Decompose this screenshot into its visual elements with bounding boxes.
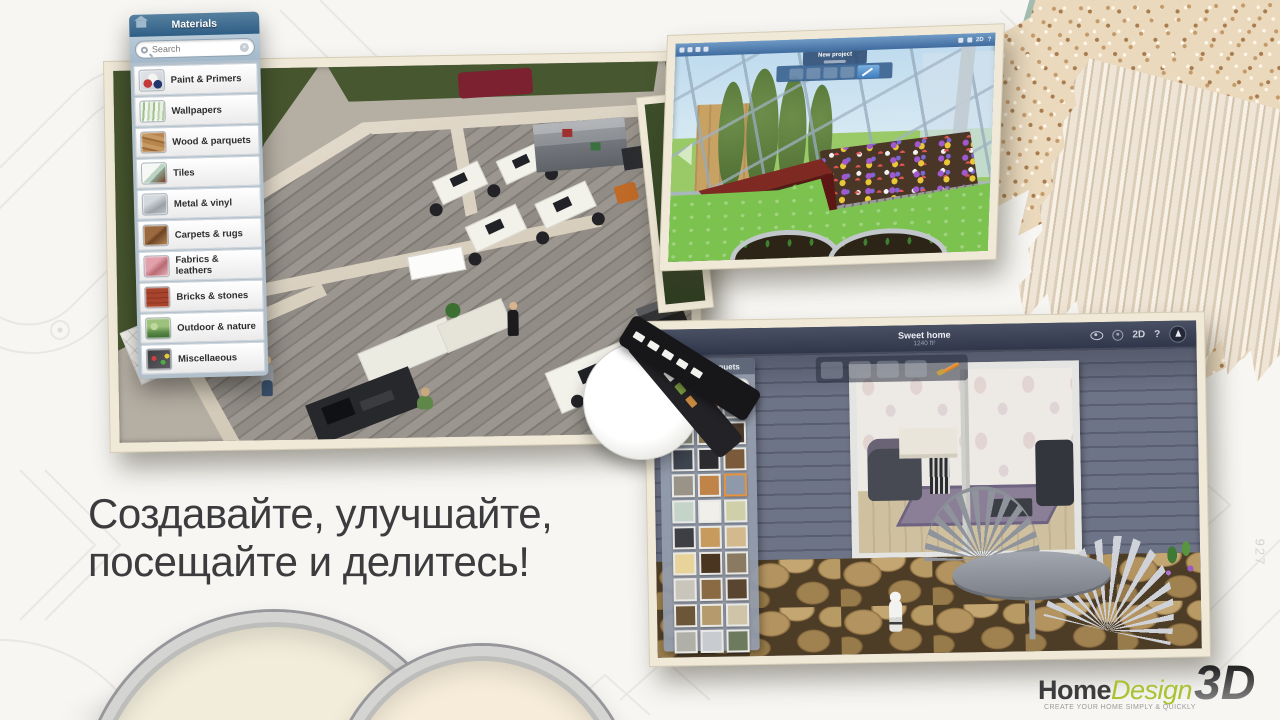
material-swatch[interactable] <box>672 526 695 549</box>
help-button[interactable]: ? <box>1154 328 1160 339</box>
misc-objects-icon <box>146 348 173 371</box>
home-title: Sweet home <box>898 329 951 340</box>
menu-icon[interactable] <box>679 47 684 52</box>
material-category-wallpapers[interactable]: Wallpapers <box>134 94 259 127</box>
headline-line-2: посещайте и делитесь! <box>88 538 552 586</box>
tool-slot[interactable] <box>905 360 927 377</box>
materials-panel: Materials × Paint & Primers Wallpapers W… <box>129 12 268 379</box>
materials-search-strip: × <box>130 34 261 63</box>
tool-slot[interactable] <box>840 66 854 78</box>
material-swatch[interactable] <box>673 552 696 575</box>
material-swatch[interactable] <box>699 552 722 575</box>
greenhouse-screenshot: 2D ? New project <box>660 24 1004 270</box>
previous-arrow-button[interactable] <box>677 143 692 166</box>
share-icon[interactable] <box>958 38 963 43</box>
material-category-paint-primers[interactable]: Paint & Primers <box>133 63 258 96</box>
material-swatch[interactable] <box>724 499 747 522</box>
material-swatch[interactable] <box>699 604 722 627</box>
material-category-miscellaeous[interactable]: Miscellaeous <box>141 342 266 375</box>
wood-planks-icon <box>140 131 167 154</box>
mode-2d-button[interactable]: 2D <box>976 36 984 42</box>
logo-design-text: Design <box>1111 675 1192 706</box>
home-area: 1240 ft² <box>898 339 951 347</box>
material-swatch[interactable] <box>698 526 721 549</box>
material-category-wood-parquets[interactable]: Wood & parquets <box>135 125 260 158</box>
brick-wall-icon <box>144 286 171 309</box>
office-shelf <box>533 117 629 173</box>
tiles-icon <box>141 162 168 185</box>
paint-tool-button[interactable] <box>857 64 879 78</box>
mode-2d-button[interactable]: 2D <box>1132 329 1145 340</box>
fabric-roll-icon <box>143 255 170 278</box>
paintbrush-tool-button[interactable] <box>933 358 963 377</box>
office-chair <box>468 252 481 265</box>
patio-plants <box>1160 534 1201 587</box>
materials-panel-header: Materials <box>129 12 260 37</box>
cat-figure <box>889 600 903 632</box>
material-swatch[interactable] <box>699 578 722 601</box>
material-swatch[interactable] <box>725 603 748 626</box>
tool-slot[interactable] <box>821 361 843 378</box>
tool-slot[interactable] <box>789 68 803 80</box>
compass-icon[interactable] <box>1169 325 1186 342</box>
help-button[interactable]: ? <box>988 36 992 42</box>
logo-home-text: Home <box>1038 675 1111 706</box>
greenhouse-scene: 2D ? New project <box>668 33 995 263</box>
plants-icon <box>145 317 172 340</box>
eye-icon[interactable] <box>1090 330 1103 339</box>
interior-side-chair <box>929 456 950 494</box>
material-category-tiles[interactable]: Tiles <box>136 156 261 189</box>
tool-slot[interactable] <box>877 360 899 377</box>
material-swatch[interactable] <box>725 577 748 600</box>
patio-tool-strip[interactable] <box>816 354 968 383</box>
material-category-carpets-rugs[interactable]: Carpets & rugs <box>137 218 262 251</box>
carpet-roll-icon <box>142 224 169 247</box>
marketing-headline: Создавайте, улучшайте, посещайте и делит… <box>88 490 552 587</box>
tool-slot[interactable] <box>849 361 871 378</box>
save-icon[interactable] <box>687 47 692 52</box>
trash-icon[interactable] <box>967 37 972 42</box>
material-swatch[interactable] <box>726 629 749 652</box>
undo-icon[interactable] <box>695 47 700 52</box>
material-swatch[interactable] <box>673 578 696 601</box>
blueprint-dimension-label: 927 <box>1252 539 1267 567</box>
material-swatch[interactable] <box>673 604 696 627</box>
home-title-block: Sweet home 1240 ft² <box>898 329 951 347</box>
interior-console-table <box>899 428 958 459</box>
materials-list: Paint & Primers Wallpapers Wood & parque… <box>130 60 268 375</box>
project-title: New project <box>803 51 867 60</box>
shelf-box <box>590 142 600 150</box>
clear-search-icon[interactable]: × <box>240 42 249 51</box>
home-icon[interactable] <box>136 21 146 28</box>
material-category-fabrics-leathers[interactable]: Fabrics & leathers <box>138 249 263 282</box>
material-category-bricks-stones[interactable]: Bricks & stones <box>139 280 264 313</box>
materials-search-field[interactable]: × <box>135 38 255 59</box>
tool-slot[interactable] <box>806 67 820 79</box>
logo-3d-text: 3D <box>1194 664 1255 704</box>
search-icon <box>141 46 148 53</box>
home-design-3d-logo: Home Design 3D CREATE YOUR HOME SIMPLY &… <box>1038 664 1255 711</box>
tool-slot[interactable] <box>823 67 837 79</box>
paint-buckets-icon <box>138 69 165 92</box>
material-swatch[interactable] <box>725 551 748 574</box>
search-input[interactable] <box>152 42 240 54</box>
redo-icon[interactable] <box>703 47 708 52</box>
material-swatch[interactable] <box>674 630 697 653</box>
interior-sofa <box>1035 440 1074 507</box>
material-swatch[interactable] <box>724 525 747 548</box>
shelf-box <box>562 129 572 137</box>
wallpaper-rolls-icon <box>139 100 166 123</box>
metal-sheet-icon <box>142 193 169 216</box>
camera-icon[interactable] <box>1112 329 1123 340</box>
office-sofa-red <box>458 68 534 99</box>
material-category-metal-vinyl[interactable]: Metal & vinyl <box>137 187 262 220</box>
material-category-outdoor-nature[interactable]: Outdoor & nature <box>140 311 265 344</box>
headline-line-1: Создавайте, улучшайте, <box>88 490 552 538</box>
material-swatch[interactable] <box>700 630 723 653</box>
materials-panel-title: Materials <box>171 18 217 31</box>
material-swatch[interactable] <box>672 500 695 523</box>
bistro-table-leg <box>1029 593 1036 639</box>
